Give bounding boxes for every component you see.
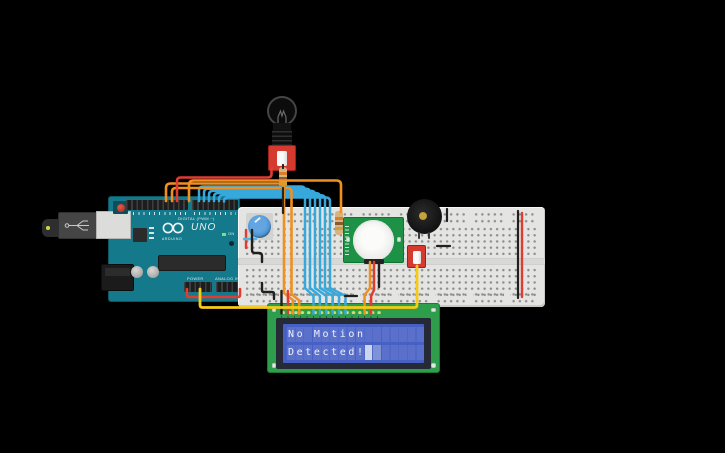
lcd-screw-br (431, 363, 436, 368)
pir-mount-right (397, 237, 402, 242)
usb-jack (96, 211, 131, 239)
power-jack-inner (105, 268, 130, 276)
atmega-chip (158, 255, 226, 271)
arduino-brand-label: ARDUINO (162, 237, 182, 241)
lcd-line-1: No Motion (288, 327, 366, 342)
digital-pin-labels (128, 212, 186, 215)
arduino-logo-icon (160, 221, 186, 235)
lcd-screw-tr (431, 308, 436, 313)
circuit-canvas: DIGITAL (PWM ~) POWER ANALOG IN UNO ARDU… (0, 0, 725, 453)
pir-dome[interactable] (353, 220, 394, 261)
buzzer-center (419, 212, 427, 220)
small-chip (133, 228, 147, 242)
lcd-line-2: Detected! (288, 345, 366, 360)
power-jack (101, 264, 134, 291)
mounting-hole (229, 241, 234, 246)
usb-cable-dot (46, 226, 50, 230)
lcd-cursor-block (365, 345, 373, 360)
power-label: POWER (187, 276, 204, 281)
on-label: ON (228, 231, 235, 236)
analog-label: ANALOG IN (215, 276, 239, 281)
lcd-cursor-block-2 (373, 345, 381, 360)
bulb-socket-slot (277, 151, 287, 166)
digital-pin-labels2 (194, 212, 236, 215)
breadboard-switch-slot (413, 251, 421, 264)
usb-trident-icon (59, 213, 98, 238)
usb-plug[interactable] (58, 212, 99, 239)
capacitor-2 (147, 266, 159, 278)
analog-header[interactable] (216, 282, 238, 292)
reset-button[interactable] (117, 204, 125, 212)
resistor-breadboard[interactable] (335, 211, 343, 235)
capacitor-1 (131, 266, 143, 278)
breadboard-switch[interactable] (407, 245, 426, 268)
uno-label: UNO (191, 222, 216, 233)
tx-rx-leds (149, 225, 154, 239)
lightbulb-base (272, 130, 292, 146)
pir-mount-left (346, 237, 351, 242)
lcd-pin-row[interactable] (280, 311, 382, 315)
digital-header-left[interactable] (126, 200, 188, 210)
on-led (222, 233, 226, 236)
